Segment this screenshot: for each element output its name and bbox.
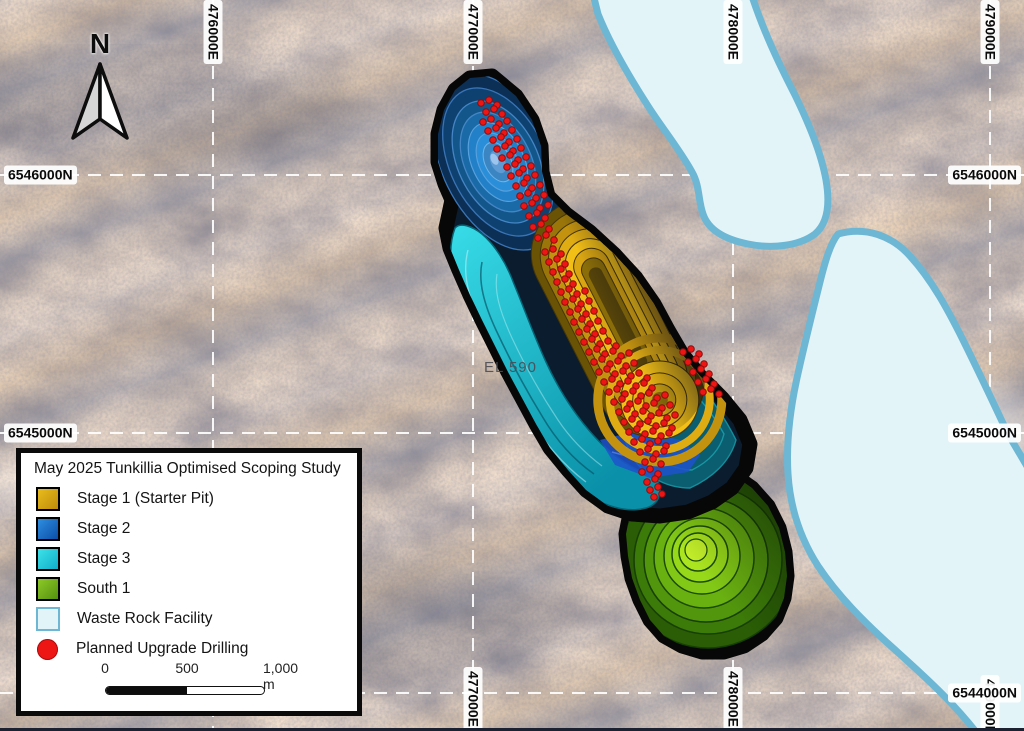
drill-point [605, 338, 612, 345]
grid-coordinate-label: 6545000N [4, 424, 77, 443]
drill-point [562, 299, 569, 306]
drill-point [650, 428, 657, 435]
drill-point [493, 125, 500, 132]
drill-point [537, 182, 544, 189]
drill-point [586, 349, 593, 356]
drill-point [576, 329, 583, 336]
drill-point [667, 402, 674, 409]
drill-point [639, 469, 646, 476]
map-viewport[interactable]: EL 590 N 476000E477000E477000E478000E478… [0, 0, 1024, 731]
south1-swatch-icon [36, 577, 60, 601]
drill-point [659, 491, 666, 498]
drill-point [647, 466, 654, 473]
drill-point [595, 318, 602, 325]
drill-point [538, 221, 545, 228]
drill-point [606, 389, 613, 396]
drill-point [698, 366, 705, 373]
drill-point [690, 369, 697, 376]
stage1-swatch-icon [36, 487, 60, 511]
grid-coordinate-label: 477000E [464, 0, 483, 64]
drill-point [532, 172, 539, 179]
drill-point [543, 232, 550, 239]
drill-point [486, 97, 493, 104]
drill-point [558, 289, 565, 296]
grid-coordinate-label: 479000E [981, 0, 1000, 64]
drill-point [611, 399, 618, 406]
drill-point [685, 359, 692, 366]
drill-point [644, 479, 651, 486]
drill-point [529, 200, 536, 207]
grid-coordinate-label: 478000E [724, 0, 743, 64]
drill-point [535, 235, 542, 242]
north-arrow: N [64, 28, 136, 149]
drill-point [645, 418, 652, 425]
drill-point [591, 359, 598, 366]
drill-point [716, 391, 723, 398]
drill-point [700, 389, 707, 396]
drill-point [630, 388, 637, 395]
drill-point [499, 111, 506, 118]
legend-item-label: South 1 [77, 580, 130, 598]
drill-point [636, 370, 643, 377]
legend-item-label: Stage 2 [77, 520, 130, 538]
drill-point [554, 256, 561, 263]
legend-item-waste: Waste Rock Facility [36, 604, 357, 634]
drill-point [499, 155, 506, 162]
drill-point [652, 476, 659, 483]
drill-point [541, 192, 548, 199]
drill-point [688, 346, 695, 353]
drill-point [645, 446, 652, 453]
drill-point [615, 358, 622, 365]
drill-point [634, 426, 641, 433]
drill-point [558, 266, 565, 273]
drill-point [641, 380, 648, 387]
drill-point [651, 400, 658, 407]
drill-point [655, 438, 662, 445]
drill-point [521, 180, 528, 187]
drill-point [525, 190, 532, 197]
drill-point [662, 392, 669, 399]
drill-point [518, 145, 525, 152]
drill-point [521, 203, 528, 210]
drill-point [480, 119, 487, 126]
drill-point [530, 224, 537, 231]
legend-item-stage1: Stage 1 (Starter Pit) [36, 484, 357, 514]
drill-point [488, 116, 495, 123]
drill-point [656, 410, 663, 417]
drill-point [680, 349, 687, 356]
drill-point [591, 308, 598, 315]
drill-point [614, 386, 621, 393]
drill-point [517, 193, 524, 200]
legend-item-label: Stage 3 [77, 550, 130, 568]
drill-point [571, 319, 578, 326]
drill-point [620, 368, 627, 375]
drill-point [490, 137, 497, 144]
stage3-swatch-icon [36, 547, 60, 571]
drill-point [542, 215, 549, 222]
grid-coordinate-label: 476000E [204, 0, 223, 64]
scale-tick-500: 500 [175, 660, 198, 676]
drill-point [650, 456, 657, 463]
drill-point [491, 106, 498, 113]
grid-coordinate-label: 477000E [464, 667, 483, 731]
drill-point [566, 286, 573, 293]
legend-items: Stage 1 (Starter Pit)Stage 2Stage 3South… [21, 484, 357, 664]
scale-tick-0: 0 [101, 660, 109, 676]
north-label: N [64, 28, 136, 60]
drill-point [494, 146, 501, 153]
drill-point [621, 419, 628, 426]
drill-point [619, 396, 626, 403]
drill-point [642, 459, 649, 466]
drill-point [508, 173, 515, 180]
drill-point [498, 134, 505, 141]
drill-point [695, 379, 702, 386]
drill-point [631, 360, 638, 367]
drill-point [581, 339, 588, 346]
tenement-label: EL 590 [484, 359, 537, 376]
drill-point [631, 439, 638, 446]
drill-point [546, 259, 553, 266]
drill-point [504, 118, 511, 125]
drill-point [485, 128, 492, 135]
drill-point [513, 183, 520, 190]
drill-point [616, 409, 623, 416]
drill-point [550, 269, 557, 276]
legend-title: May 2025 Tunkillia Optimised Scoping Stu… [34, 460, 357, 478]
drill-point [586, 298, 593, 305]
drill-point [635, 398, 642, 405]
legend-item-stage3: Stage 3 [36, 544, 357, 574]
drill-point [637, 449, 644, 456]
scale-bar-fill [106, 687, 187, 694]
drill-point [655, 484, 662, 491]
drill-point [589, 336, 596, 343]
drill-point [478, 100, 485, 107]
drill-point [514, 136, 521, 143]
grid-coordinate-label: 6546000N [948, 166, 1021, 185]
drill-point [658, 461, 665, 468]
drill-point [639, 436, 646, 443]
drill-point [703, 376, 710, 383]
drill-point [483, 109, 490, 116]
drill-point [551, 237, 558, 244]
drill-point [575, 306, 582, 313]
drill-point [672, 412, 679, 419]
drill-point [651, 494, 658, 501]
grid-coordinate-label: 6545000N [948, 424, 1021, 443]
drill-point [708, 386, 715, 393]
north-arrow-icon [64, 58, 136, 144]
drill-point [582, 288, 589, 295]
legend-item-label: Planned Upgrade Drilling [76, 640, 248, 658]
drill-point [596, 369, 603, 376]
drill-point [610, 348, 617, 355]
drill-point [542, 249, 549, 256]
drill-point [640, 408, 647, 415]
scale-tick-1000: 1,000 m [263, 660, 307, 692]
drill-point [554, 279, 561, 286]
drill-point [550, 246, 557, 253]
drill-point [579, 316, 586, 323]
drill-point [626, 429, 633, 436]
legend-item-stage2: Stage 2 [36, 514, 357, 544]
grid-coordinate-label: 6546000N [4, 166, 77, 185]
grid-coordinate-label: 478000E [724, 667, 743, 731]
waste-swatch-icon [36, 607, 60, 631]
drill-point [528, 163, 535, 170]
drill-point [629, 416, 636, 423]
drill-point [625, 378, 632, 385]
drill-point [526, 213, 533, 220]
drill-point [594, 346, 601, 353]
drill-point [600, 328, 607, 335]
scale-bar: 0 500 1,000 m [89, 660, 329, 708]
legend-item-south1: South 1 [36, 574, 357, 604]
scale-bar-track [105, 686, 265, 695]
drill-point [570, 296, 577, 303]
drill-point [567, 309, 574, 316]
drill-point [502, 143, 509, 150]
drill-point [599, 356, 606, 363]
stage2-swatch-icon [36, 517, 60, 541]
drill-point [523, 154, 530, 161]
legend-item-label: Waste Rock Facility [77, 610, 213, 628]
drill-point [646, 390, 653, 397]
drill-point [534, 210, 541, 217]
drill-point [512, 161, 519, 168]
drill-point-icon [37, 639, 58, 660]
drill-point [507, 152, 514, 159]
drill-point [516, 170, 523, 177]
drill-point [624, 406, 631, 413]
drill-point [609, 376, 616, 383]
drill-point [647, 487, 654, 494]
drill-point [666, 430, 673, 437]
grid-coordinate-label: 6544000N [948, 684, 1021, 703]
drill-point [601, 379, 608, 386]
drill-point [504, 164, 511, 171]
drill-point [626, 350, 633, 357]
drill-point [545, 202, 552, 209]
drill-point [661, 448, 668, 455]
legend-item-label: Stage 1 (Starter Pit) [77, 490, 214, 508]
legend-panel: May 2025 Tunkillia Optimised Scoping Stu… [16, 448, 362, 716]
drill-point [509, 127, 516, 134]
drill-point [584, 326, 591, 333]
drill-point [661, 420, 668, 427]
drill-point [604, 366, 611, 373]
drill-point [693, 356, 700, 363]
drill-point [562, 276, 569, 283]
